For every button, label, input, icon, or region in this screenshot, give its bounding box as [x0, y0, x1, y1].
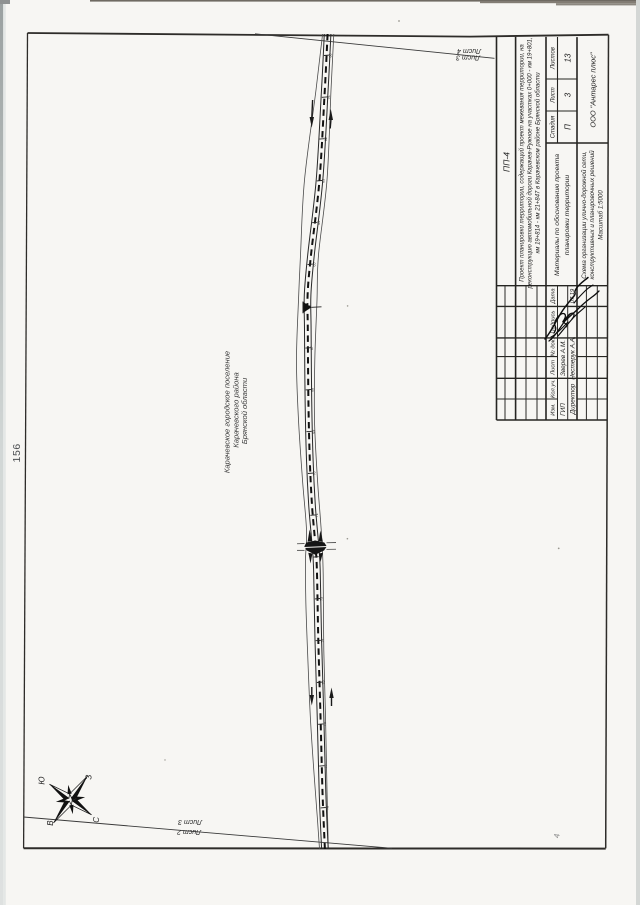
svg-text:Схема организации улично-дорож: Схема организации улично-дорожной сети,	[581, 151, 588, 279]
svg-text:Лист: Лист	[550, 360, 556, 376]
svg-text:64: 64	[317, 221, 321, 225]
svg-text:13: 13	[563, 53, 572, 62]
svg-text:77: 77	[324, 764, 328, 768]
svg-text:С: С	[92, 817, 101, 823]
svg-text:ГИП: ГИП	[560, 403, 567, 416]
svg-text:70: 70	[313, 472, 317, 476]
svg-text:Лист 4: Лист 4	[457, 47, 482, 54]
svg-text:63: 63	[322, 179, 326, 183]
svg-text:Дата: Дата	[550, 288, 556, 305]
svg-text:Лист 3: Лист 3	[456, 54, 481, 61]
svg-text:ООО "Антарес плюс": ООО "Антарес плюс"	[589, 52, 598, 127]
svg-text:ПП-4: ПП-4	[502, 152, 512, 172]
svg-text:Зверев А.М.: Зверев А.М.	[560, 340, 567, 376]
svg-text:65: 65	[312, 263, 316, 267]
svg-text:З: З	[84, 775, 93, 780]
svg-text:Карачевского района: Карачевского района	[231, 372, 240, 447]
svg-text:3: 3	[563, 92, 572, 97]
svg-text:62: 62	[324, 137, 328, 141]
svg-text:Проект планировки территории,: Проект планировки территории, содержащий…	[519, 44, 526, 282]
svg-text:Ю: Ю	[37, 776, 46, 784]
svg-text:71: 71	[315, 513, 319, 517]
svg-text:Лист: Лист	[551, 87, 557, 103]
svg-text:№ док.: № док.	[550, 338, 556, 357]
svg-text:75: 75	[322, 681, 326, 685]
svg-text:60: 60	[329, 54, 333, 58]
svg-text:Листов: Листов	[551, 47, 557, 70]
svg-text:Кол.уч.: Кол.уч.	[550, 379, 556, 398]
svg-text:Лист 2: Лист 2	[177, 828, 202, 835]
svg-text:Материалы по обоснованию проек: Материалы по обоснованию проекта	[553, 154, 561, 276]
svg-text:конструктивных и планировочных: конструктивных и планировочных решений	[589, 150, 596, 280]
svg-text:Директор: Директор	[570, 383, 577, 415]
svg-text:В: В	[46, 820, 55, 826]
svg-text:67: 67	[310, 346, 314, 350]
svg-text:61: 61	[327, 95, 331, 99]
svg-text:156: 156	[11, 443, 23, 462]
svg-text:планировки территории: планировки территории	[564, 175, 571, 256]
svg-text:73: 73	[320, 597, 324, 601]
svg-text:68: 68	[311, 388, 315, 392]
svg-text:Масштаб 1:5000: Масштаб 1:5000	[597, 190, 604, 240]
svg-text:74: 74	[321, 639, 325, 643]
svg-text:Карачевское городское поселени: Карачевское городское поселение	[222, 351, 231, 473]
svg-text:П: П	[563, 124, 572, 130]
svg-text:78: 78	[325, 806, 329, 810]
svg-text:км 19+814 - км 21+847 в Караче: км 19+814 - км 21+847 в Карачевском райо…	[535, 72, 542, 254]
svg-text:Стадия: Стадия	[551, 115, 557, 138]
svg-text:Нестерук А.А.: Нестерук А.А.	[570, 336, 577, 380]
svg-text:76: 76	[323, 722, 327, 726]
svg-text:Изм.: Изм.	[550, 403, 556, 415]
svg-text:Брянской области: Брянской области	[240, 377, 249, 444]
svg-text:69: 69	[311, 430, 315, 434]
svg-text:Лист 3: Лист 3	[178, 818, 203, 825]
svg-text:реконструкцию автомобильной до: реконструкцию автомобильной дороги Карач…	[527, 37, 534, 289]
